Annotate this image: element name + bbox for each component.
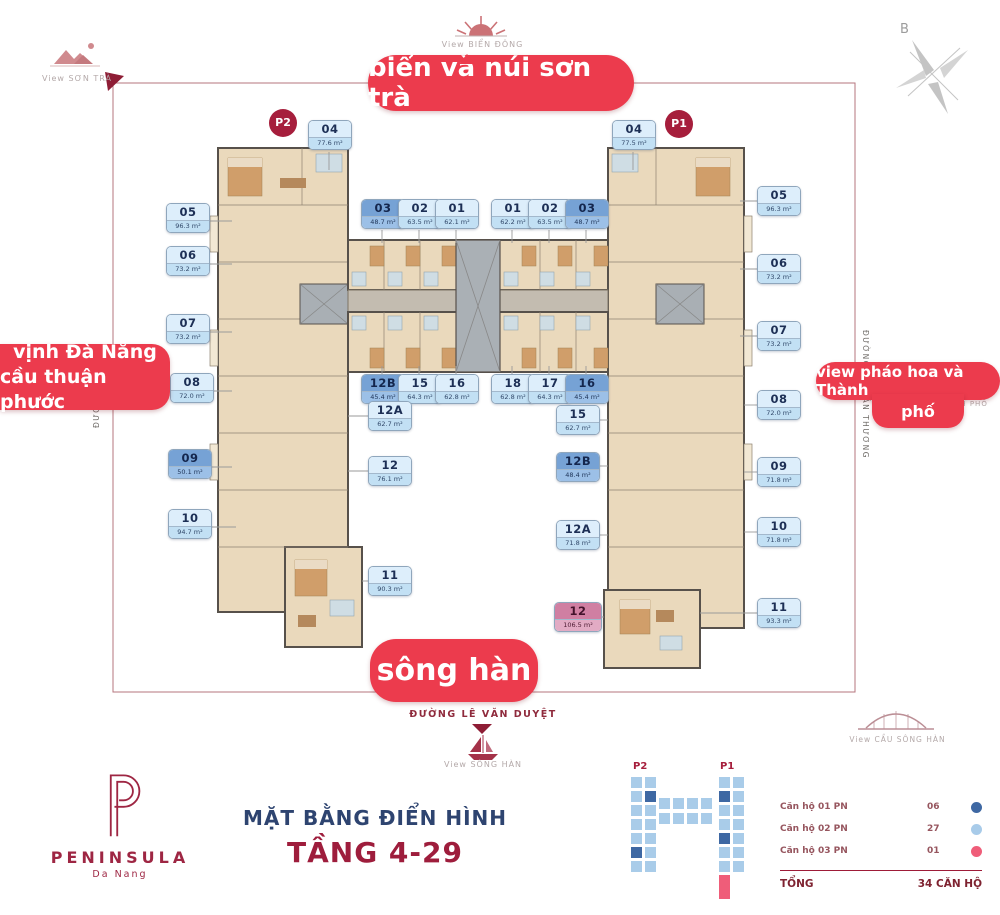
minimap-cell bbox=[718, 818, 731, 831]
legend-count: 01 bbox=[927, 846, 971, 856]
tower-badge-p2: P2 bbox=[269, 109, 297, 137]
street-arrow-icon bbox=[472, 724, 492, 734]
unit-label: 10 94.7 m² bbox=[168, 509, 212, 539]
unit-area: 73.2 m² bbox=[167, 264, 209, 275]
unit-area: 50.1 m² bbox=[169, 467, 211, 478]
legend-rows: Căn hộ 01 PN 06 Căn hộ 02 PN 27 Căn hộ 0… bbox=[780, 796, 982, 862]
legend-count: 27 bbox=[927, 824, 971, 834]
unit-number: 12B bbox=[557, 453, 599, 470]
street-ho-han-thuong: ĐƯỜNG HỒ HÁN THƯƠNG bbox=[861, 330, 870, 490]
unit-label: 12A 62.7 m² bbox=[368, 401, 412, 431]
unit-label: 03 48.7 m² bbox=[565, 199, 609, 229]
unit-number: 07 bbox=[758, 322, 800, 339]
banner-left-line2: cầu thuận phước bbox=[0, 365, 170, 415]
minimap-cell bbox=[630, 804, 643, 817]
unit-number: 06 bbox=[758, 255, 800, 272]
plan-title: MẶT BẰNG ĐIỂN HÌNH bbox=[240, 806, 510, 830]
legend-color-dot bbox=[971, 802, 982, 813]
plan-subtitle: TẦNG 4-29 bbox=[240, 836, 510, 869]
minimap-cell bbox=[644, 776, 657, 789]
compass-north-label: B bbox=[900, 22, 909, 37]
minimap-cell bbox=[718, 776, 731, 789]
minimap-cell bbox=[718, 804, 731, 817]
unit-number: 04 bbox=[613, 121, 655, 138]
unit-area: 77.5 m² bbox=[613, 138, 655, 149]
legend-label: Căn hộ 02 PN bbox=[780, 824, 927, 834]
unit-number: 09 bbox=[169, 450, 211, 467]
unit-area: 96.3 m² bbox=[758, 204, 800, 215]
unit-area: 48.4 m² bbox=[557, 470, 599, 481]
unit-label: 07 73.2 m² bbox=[757, 321, 801, 351]
banner-left-line1: vịnh Đà Nẵng bbox=[13, 340, 157, 365]
unit-area: 73.2 m² bbox=[758, 272, 800, 283]
floorplan-page: View BIỂN ĐÔNG View SƠN TRÀ View SÔNG HÀ… bbox=[0, 0, 1000, 915]
unit-label: 16 45.4 m² bbox=[565, 374, 609, 404]
minimap-cell bbox=[630, 776, 643, 789]
unit-number: 16 bbox=[566, 375, 608, 392]
unit-label: 10 71.8 m² bbox=[757, 517, 801, 547]
unit-number: 11 bbox=[758, 599, 800, 616]
unit-label: 08 72.0 m² bbox=[757, 390, 801, 420]
tower-badge-p1: P1 bbox=[665, 110, 693, 138]
minimap-cell bbox=[732, 776, 745, 789]
unit-number: 03 bbox=[566, 200, 608, 217]
unit-label: 12 76.1 m² bbox=[368, 456, 412, 486]
minimap-p1-label: P1 bbox=[720, 761, 734, 772]
mountain-icon bbox=[50, 43, 100, 66]
unit-number: 11 bbox=[369, 567, 411, 584]
minimap-cell bbox=[732, 846, 745, 859]
unit-area: 96.3 m² bbox=[167, 221, 209, 232]
unit-type-legend: Căn hộ 01 PN 06 Căn hộ 02 PN 27 Căn hộ 0… bbox=[780, 796, 982, 890]
bridge-icon bbox=[858, 711, 934, 729]
unit-area: 106.5 m² bbox=[555, 620, 601, 631]
sun-icon bbox=[455, 16, 507, 36]
unit-label: 05 96.3 m² bbox=[166, 203, 210, 233]
unit-area: 62.1 m² bbox=[436, 217, 478, 228]
minimap-cell bbox=[732, 860, 745, 873]
legend-total-row: TỔNG 34 CĂN HỘ bbox=[780, 878, 982, 890]
unit-area: 48.7 m² bbox=[566, 217, 608, 228]
unit-area: 73.2 m² bbox=[167, 332, 209, 343]
unit-number: 06 bbox=[167, 247, 209, 264]
banner-sea-mountain-view: biển và núi sơn trà bbox=[368, 55, 634, 111]
unit-label: 04 77.5 m² bbox=[612, 120, 656, 150]
logo-p-monogram-icon bbox=[98, 768, 142, 840]
sailboat-icon bbox=[468, 735, 498, 760]
minimap-cell bbox=[644, 790, 657, 803]
unit-label: 07 73.2 m² bbox=[166, 314, 210, 344]
minimap-cell bbox=[732, 832, 745, 845]
unit-number: 04 bbox=[309, 121, 351, 138]
legend-color-dot bbox=[971, 824, 982, 835]
unit-label: 15 62.7 m² bbox=[556, 405, 600, 435]
view-bien-dong-caption: View BIỂN ĐÔNG bbox=[420, 40, 545, 49]
minimap-cell bbox=[718, 874, 731, 900]
unit-area: 77.6 m² bbox=[309, 138, 351, 149]
unit-area: 62.7 m² bbox=[369, 419, 411, 430]
unit-number: 08 bbox=[171, 374, 213, 391]
unit-number: 15 bbox=[557, 406, 599, 423]
unit-label: 09 50.1 m² bbox=[168, 449, 212, 479]
unit-label: 09 71.8 m² bbox=[757, 457, 801, 487]
legend-row: Căn hộ 02 PN 27 bbox=[780, 818, 982, 840]
logo-subtitle: Da Nang bbox=[40, 869, 200, 880]
legend-total-label: TỔNG bbox=[780, 878, 918, 890]
view-song-han-caption: View SÔNG HÀN bbox=[428, 760, 538, 769]
minimap-cell bbox=[700, 797, 713, 810]
minimap-p2-label: P2 bbox=[633, 761, 647, 772]
logo-title: PENINSULA bbox=[40, 848, 200, 867]
unit-number: 05 bbox=[167, 204, 209, 221]
minimap-cell bbox=[644, 846, 657, 859]
minimap-cell bbox=[644, 860, 657, 873]
unit-label: 12 106.5 m² bbox=[554, 602, 602, 632]
minimap-cell bbox=[630, 860, 643, 873]
minimap-cell bbox=[700, 812, 713, 825]
minimap-cell bbox=[686, 812, 699, 825]
unit-number: 07 bbox=[167, 315, 209, 332]
unit-label: 12B 48.4 m² bbox=[556, 452, 600, 482]
minimap-cell bbox=[732, 804, 745, 817]
minimap-cell bbox=[630, 818, 643, 831]
unit-label: 11 90.3 m² bbox=[368, 566, 412, 596]
unit-number: 01 bbox=[436, 200, 478, 217]
unit-number: 10 bbox=[169, 510, 211, 527]
unit-number: 05 bbox=[758, 187, 800, 204]
unit-area: 73.2 m² bbox=[758, 339, 800, 350]
unit-number: 16 bbox=[436, 375, 478, 392]
unit-number: 12A bbox=[557, 521, 599, 538]
unit-label: 01 62.1 m² bbox=[435, 199, 479, 229]
minimap-cell bbox=[644, 804, 657, 817]
legend-count: 06 bbox=[927, 802, 971, 812]
banner-han-river-view: sông hàn bbox=[370, 639, 538, 702]
unit-area: 94.7 m² bbox=[169, 527, 211, 538]
plan-title-block: MẶT BẰNG ĐIỂN HÌNH TẦNG 4-29 bbox=[240, 806, 510, 869]
unit-area: 71.8 m² bbox=[557, 538, 599, 549]
minimap-cell bbox=[630, 846, 643, 859]
left-tower bbox=[210, 148, 362, 647]
unit-area: 76.1 m² bbox=[369, 474, 411, 485]
unit-label: 06 73.2 m² bbox=[757, 254, 801, 284]
minimap-cell bbox=[732, 818, 745, 831]
minimap-cell bbox=[718, 790, 731, 803]
minimap-cell bbox=[718, 832, 731, 845]
legend-divider bbox=[780, 870, 982, 871]
minimap-cell bbox=[686, 797, 699, 810]
unit-number: 12A bbox=[369, 402, 411, 419]
minimap-cell bbox=[672, 812, 685, 825]
unit-label: 06 73.2 m² bbox=[166, 246, 210, 276]
banner-fireworks-city-view-tab: phố bbox=[872, 394, 964, 428]
unit-label: 16 62.8 m² bbox=[435, 374, 479, 404]
unit-area: 62.7 m² bbox=[557, 423, 599, 434]
unit-area: 72.0 m² bbox=[171, 391, 213, 402]
minimap-cell bbox=[644, 818, 657, 831]
minimap-cell bbox=[644, 832, 657, 845]
legend-label: Căn hộ 03 PN bbox=[780, 846, 927, 856]
banner-bay-bridge-view: vịnh Đà Nẵng cầu thuận phước bbox=[0, 344, 170, 410]
minimap-cell bbox=[658, 812, 671, 825]
unit-area: 62.8 m² bbox=[436, 392, 478, 403]
unit-label: 12A 71.8 m² bbox=[556, 520, 600, 550]
street-le-van-duyet: ĐƯỜNG LÊ VĂN DUYỆT bbox=[403, 709, 563, 720]
minimap-cell bbox=[658, 797, 671, 810]
legend-row: Căn hộ 01 PN 06 bbox=[780, 796, 982, 818]
unit-label: 08 72.0 m² bbox=[170, 373, 214, 403]
unit-area: 90.3 m² bbox=[369, 584, 411, 595]
unit-number: 08 bbox=[758, 391, 800, 408]
minimap-cell bbox=[732, 790, 745, 803]
unit-label: 05 96.3 m² bbox=[757, 186, 801, 216]
unit-area: 45.4 m² bbox=[566, 392, 608, 403]
unit-area: 71.8 m² bbox=[758, 535, 800, 546]
unit-label: 04 77.6 m² bbox=[308, 120, 352, 150]
peninsula-logo: PENINSULA Da Nang bbox=[40, 768, 200, 880]
unit-number: 12 bbox=[555, 603, 601, 620]
minimap-cell bbox=[672, 797, 685, 810]
minimap-cell bbox=[630, 832, 643, 845]
view-son-tra-caption: View SƠN TRÀ bbox=[22, 74, 132, 83]
unit-area: 71.8 m² bbox=[758, 475, 800, 486]
unit-number: 09 bbox=[758, 458, 800, 475]
legend-row: Căn hộ 03 PN 01 bbox=[780, 840, 982, 862]
minimap-cell bbox=[718, 846, 731, 859]
compass-icon bbox=[896, 40, 968, 114]
minimap-cell bbox=[718, 860, 731, 873]
minimap-cell bbox=[630, 790, 643, 803]
right-tower bbox=[604, 148, 752, 668]
view-cau-song-han-caption: View CẦU SÔNG HÀN bbox=[840, 735, 955, 744]
central-connector bbox=[348, 240, 608, 372]
unit-number: 12 bbox=[369, 457, 411, 474]
unit-number: 10 bbox=[758, 518, 800, 535]
legend-label: Căn hộ 01 PN bbox=[780, 802, 927, 812]
unit-area: 93.3 m² bbox=[758, 616, 800, 627]
unit-area: 72.0 m² bbox=[758, 408, 800, 419]
legend-color-dot bbox=[971, 846, 982, 857]
legend-total-value: 34 CĂN HỘ bbox=[918, 878, 982, 890]
unit-label: 11 93.3 m² bbox=[757, 598, 801, 628]
